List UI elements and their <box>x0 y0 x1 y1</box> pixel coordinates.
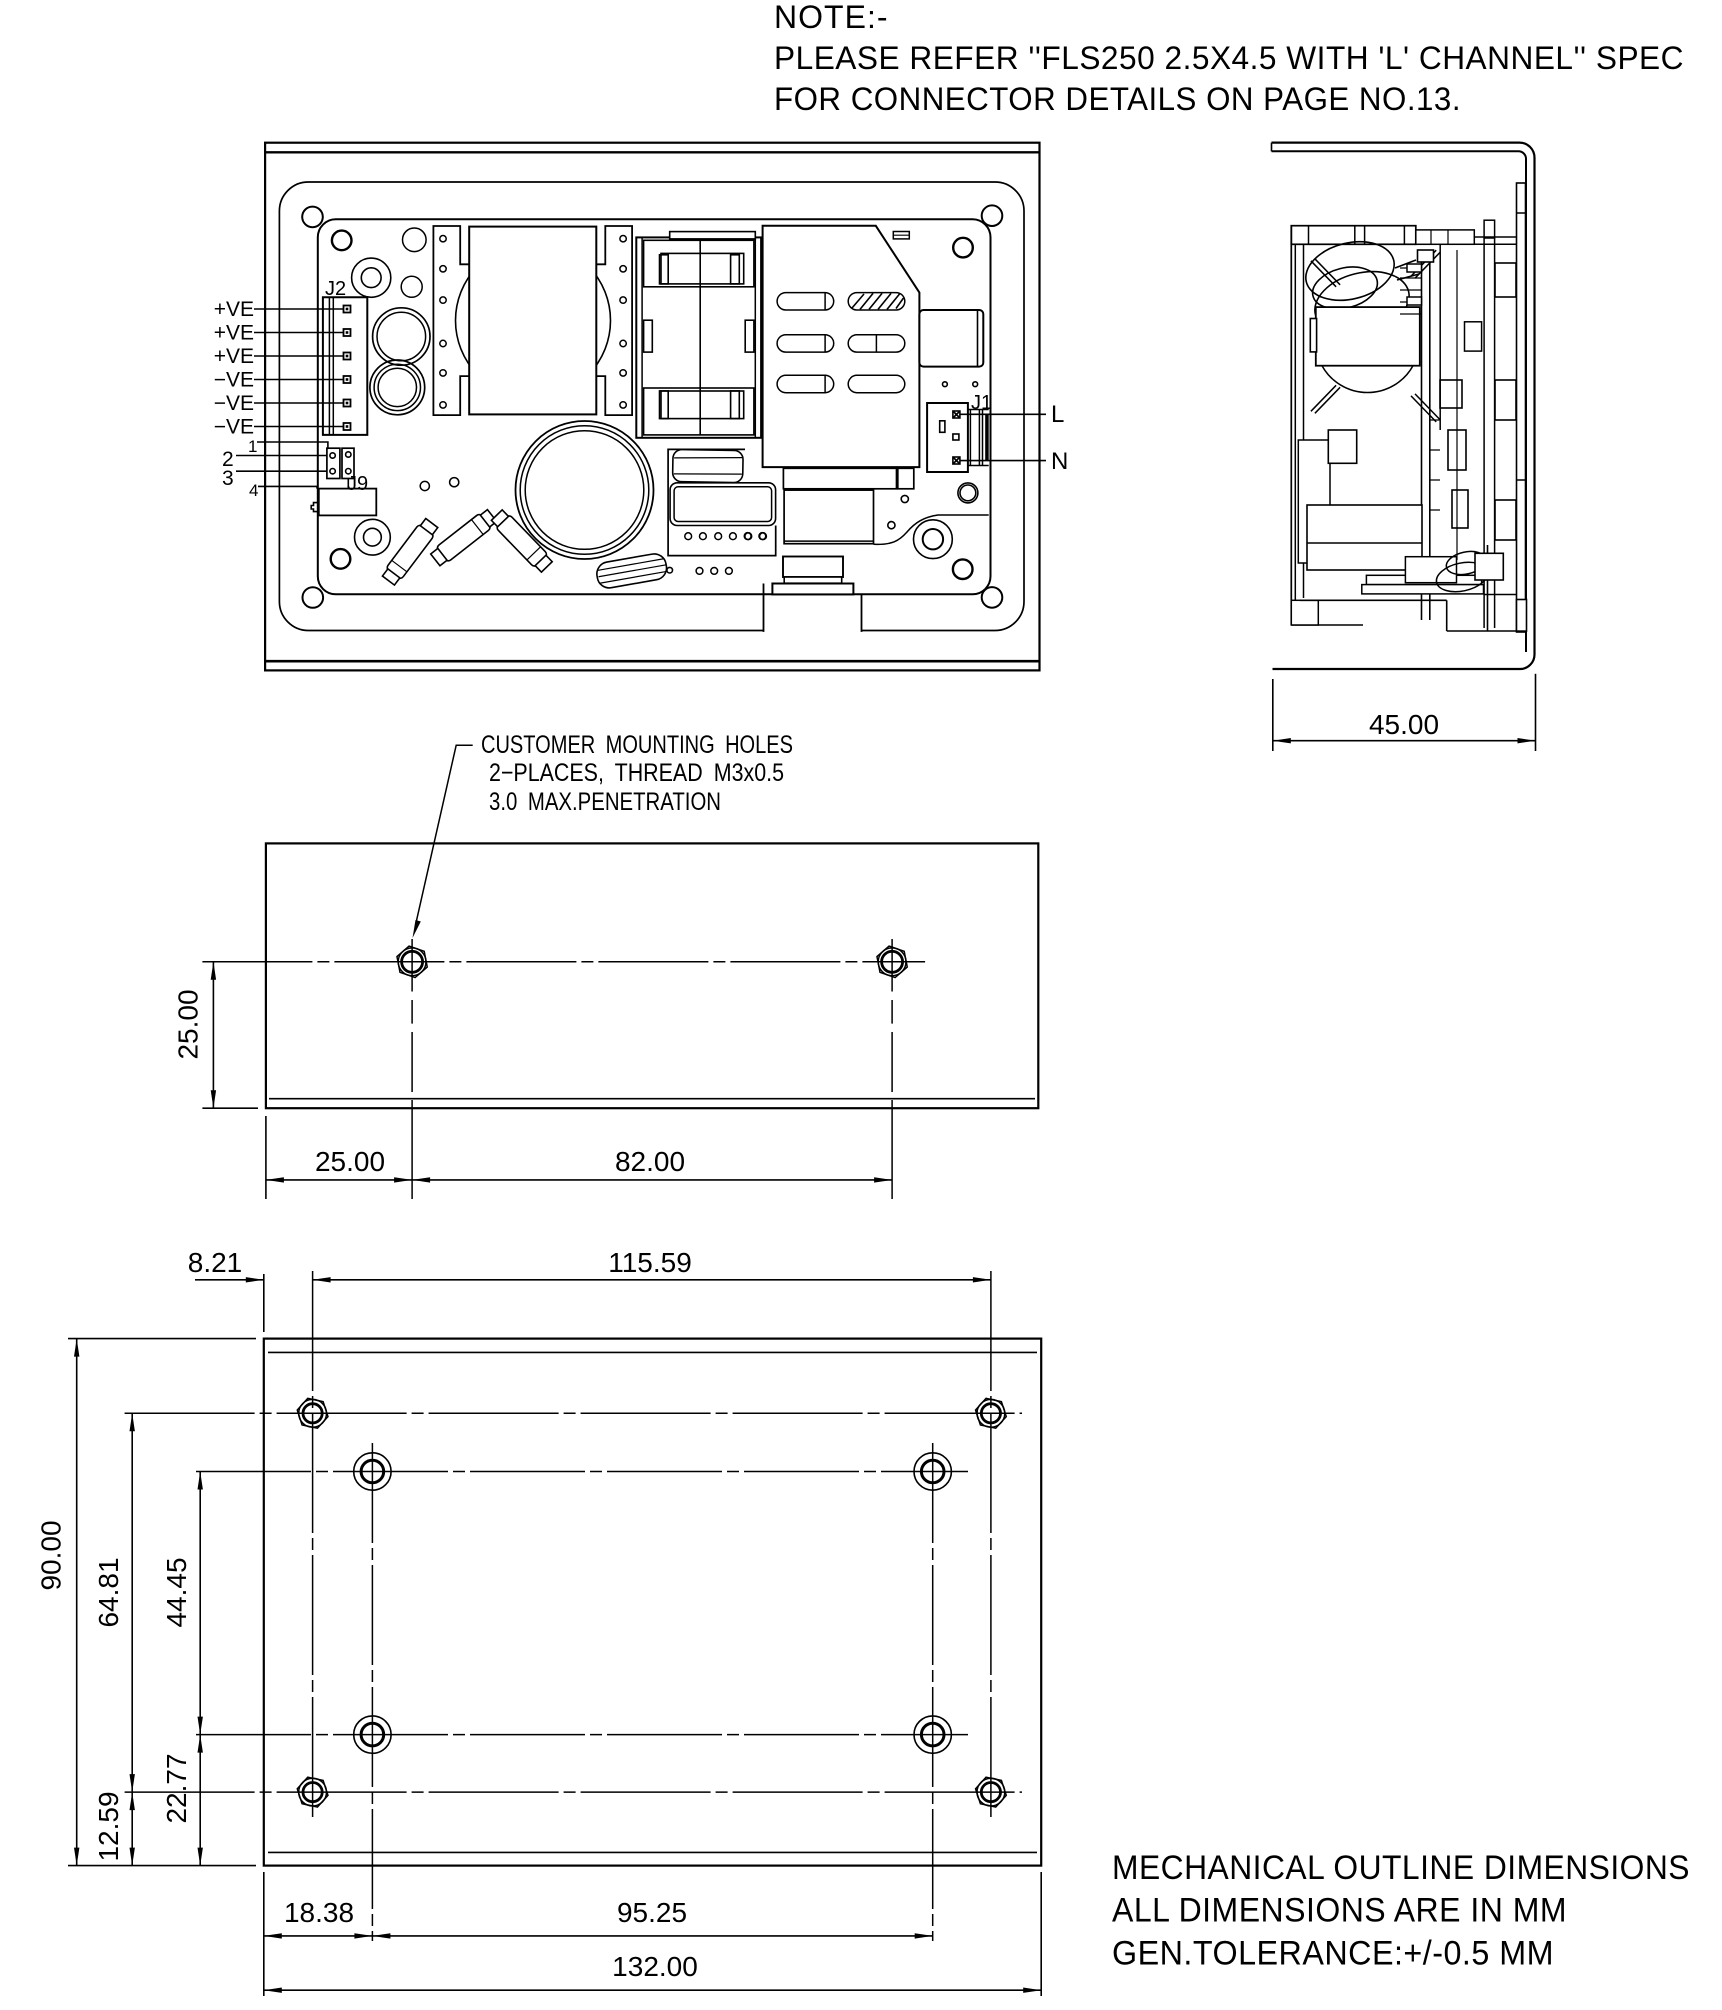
svg-text:+VE: +VE <box>214 345 254 368</box>
svg-text:115.59: 115.59 <box>608 1247 692 1278</box>
svg-text:J9: J9 <box>347 473 368 495</box>
svg-text:25.00: 25.00 <box>173 989 204 1059</box>
svg-text:82.00: 82.00 <box>615 1146 685 1177</box>
svg-text:PLEASE REFER ''FLS250 2.5X4.5: PLEASE REFER ''FLS250 2.5X4.5 WITH 'L' C… <box>774 40 1684 76</box>
svg-text:L: L <box>1051 401 1064 428</box>
svg-text:NOTE:-: NOTE:- <box>774 0 888 35</box>
svg-text:45.00: 45.00 <box>1369 709 1439 740</box>
svg-text:90.00: 90.00 <box>36 1520 67 1590</box>
svg-text:MECHANICAL OUTLINE DIMENSIONS: MECHANICAL OUTLINE DIMENSIONS <box>1112 1849 1690 1887</box>
svg-text:132.00: 132.00 <box>612 1951 698 1982</box>
svg-text:95.25: 95.25 <box>617 1897 687 1928</box>
svg-text:2−PLACES, THREAD M3x0.5: 2−PLACES, THREAD M3x0.5 <box>489 759 784 787</box>
svg-text:GEN.TOLERANCE:+/-0.5 MM: GEN.TOLERANCE:+/-0.5 MM <box>1112 1935 1554 1973</box>
svg-text:CUSTOMER MOUNTING HOLES: CUSTOMER MOUNTING HOLES <box>481 731 793 759</box>
svg-text:22.77: 22.77 <box>161 1753 192 1823</box>
svg-text:64.81: 64.81 <box>93 1557 124 1627</box>
svg-text:J1: J1 <box>971 392 992 414</box>
svg-text:−VE: −VE <box>214 416 254 439</box>
svg-text:ALL DIMENSIONS ARE IN MM: ALL DIMENSIONS ARE IN MM <box>1112 1892 1567 1930</box>
svg-text:8.21: 8.21 <box>188 1247 243 1278</box>
svg-text:1: 1 <box>248 437 257 456</box>
svg-text:J2: J2 <box>325 278 346 300</box>
svg-text:−VE: −VE <box>214 392 254 415</box>
svg-text:44.45: 44.45 <box>161 1557 192 1627</box>
svg-text:FOR CONNECTOR DETAILS ON PAGE: FOR CONNECTOR DETAILS ON PAGE NO.13. <box>774 81 1461 117</box>
svg-text:−VE: −VE <box>214 369 254 392</box>
svg-text:18.38: 18.38 <box>284 1897 354 1928</box>
svg-text:25.00: 25.00 <box>315 1146 385 1177</box>
svg-text:3.0 MAX.PENETRATION: 3.0 MAX.PENETRATION <box>489 788 721 816</box>
svg-text:+VE: +VE <box>214 298 254 321</box>
svg-text:+VE: +VE <box>214 322 254 345</box>
svg-text:4: 4 <box>249 481 258 500</box>
svg-text:12.59: 12.59 <box>93 1791 124 1861</box>
svg-text:3: 3 <box>222 467 234 490</box>
svg-text:N: N <box>1051 448 1068 475</box>
